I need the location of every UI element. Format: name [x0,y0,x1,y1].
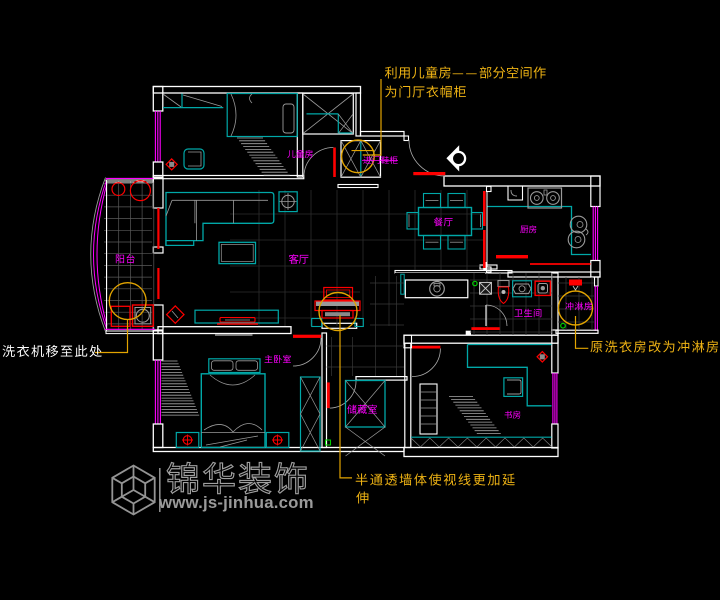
svg-text:www.js-jinhua.com: www.js-jinhua.com [158,493,314,512]
